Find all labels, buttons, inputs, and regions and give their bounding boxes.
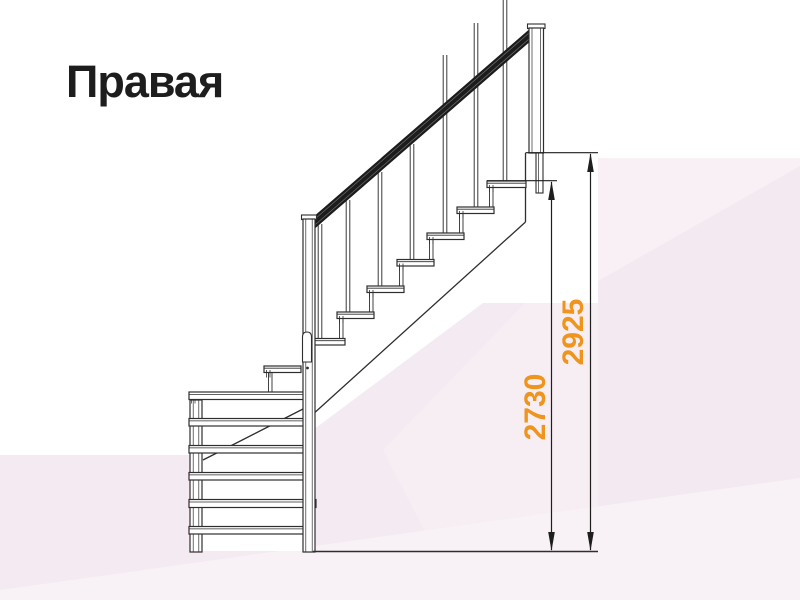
- newel-dot: [306, 367, 309, 370]
- page-title: Правая: [66, 56, 223, 108]
- bar: [189, 473, 304, 481]
- dimension-label-2730: 2730: [520, 365, 552, 449]
- bar: [189, 446, 304, 454]
- dimension-label-2925: 2925: [558, 290, 590, 374]
- bar: [189, 419, 304, 427]
- staircase-diagram-page: Правая 2730 2925: [0, 0, 800, 600]
- top-newel-lower: [536, 153, 543, 193]
- bar: [189, 500, 316, 508]
- half-newel: [303, 332, 312, 362]
- mid-newel-post: [302, 215, 317, 552]
- bar: [189, 527, 304, 535]
- tread: [311, 339, 345, 346]
